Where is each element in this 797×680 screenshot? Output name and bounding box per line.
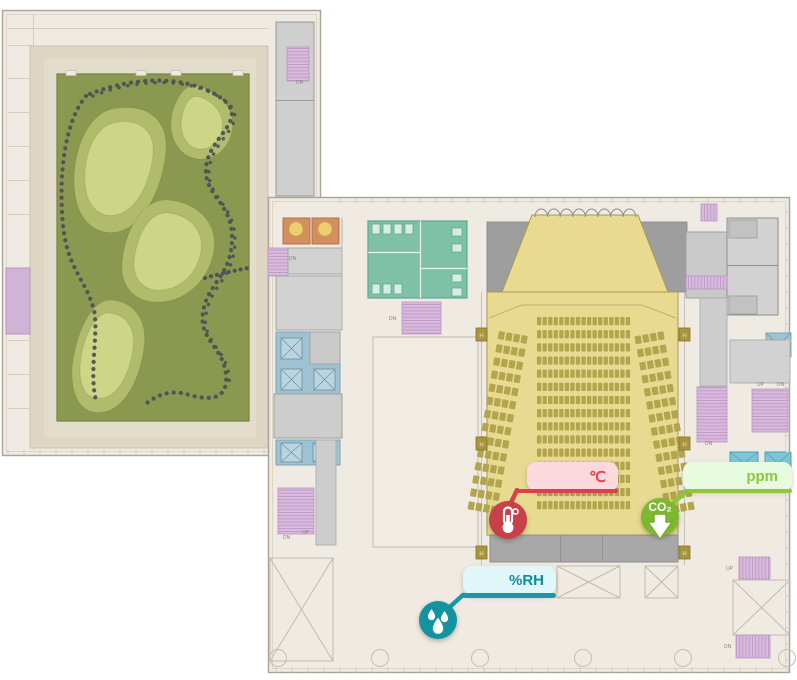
west-staircase: [278, 488, 314, 534]
floor-plan: HHHHHH DNDNDNDNUPDNUPDNUPDN: [0, 0, 797, 680]
stair-label-dn: DN: [724, 644, 732, 650]
hose-marker-label: H: [682, 552, 686, 558]
stair-label-up: UP: [726, 566, 734, 572]
stair-label-dn: DN: [705, 441, 713, 447]
side-hall-room: [373, 337, 478, 547]
hose-marker-label: H: [479, 334, 483, 340]
east-stair-b: [752, 389, 788, 432]
co2-callout[interactable]: ppm: [683, 462, 792, 491]
stair-label-dn: DN: [289, 256, 297, 262]
down-arrow-icon: [641, 513, 679, 543]
east-stair-a: [697, 387, 727, 442]
humidity-sensor-icon[interactable]: [419, 601, 457, 639]
co2-sensor-icon[interactable]: CO₂: [641, 498, 679, 536]
hose-marker-label: H: [682, 334, 686, 340]
north-stairwell: [276, 22, 314, 196]
humidity-unit-label: %RH: [509, 572, 544, 589]
west-elevator-core: [274, 332, 342, 545]
hose-marker-label: H: [479, 552, 483, 558]
stair-label-dn: DN: [777, 382, 785, 388]
stair-label-dn: DN: [283, 535, 291, 541]
water-drops-icon: [419, 601, 457, 639]
humidity-underline: [461, 593, 556, 598]
west-stair: [6, 268, 30, 334]
temperature-unit-label: ℃: [589, 468, 606, 486]
auditorium-building: HHHHHH: [268, 198, 796, 673]
co2-underline: [686, 489, 792, 494]
hose-marker-label: H: [682, 443, 686, 449]
floor-plan-view: HHHHHH DNDNDNDNUPDNUPDNUPDN ℃ ppm CO₂ %R…: [0, 0, 797, 680]
stair-label-dn: DN: [389, 316, 397, 322]
hose-marker-label: H: [479, 443, 483, 449]
temperature-underline: [516, 489, 618, 494]
stair-label-up: UP: [302, 530, 310, 536]
stair-label-up: UP: [757, 382, 765, 388]
temperature-callout[interactable]: ℃: [527, 462, 618, 491]
co2-unit-label: ppm: [746, 468, 778, 485]
restroom-stair: [402, 302, 441, 334]
thermometer-icon: [489, 501, 527, 539]
humidity-callout[interactable]: %RH: [463, 566, 556, 595]
small-stair: [268, 248, 288, 276]
temperature-sensor-icon[interactable]: [489, 501, 527, 539]
stair-label-dn: DN: [296, 80, 304, 86]
